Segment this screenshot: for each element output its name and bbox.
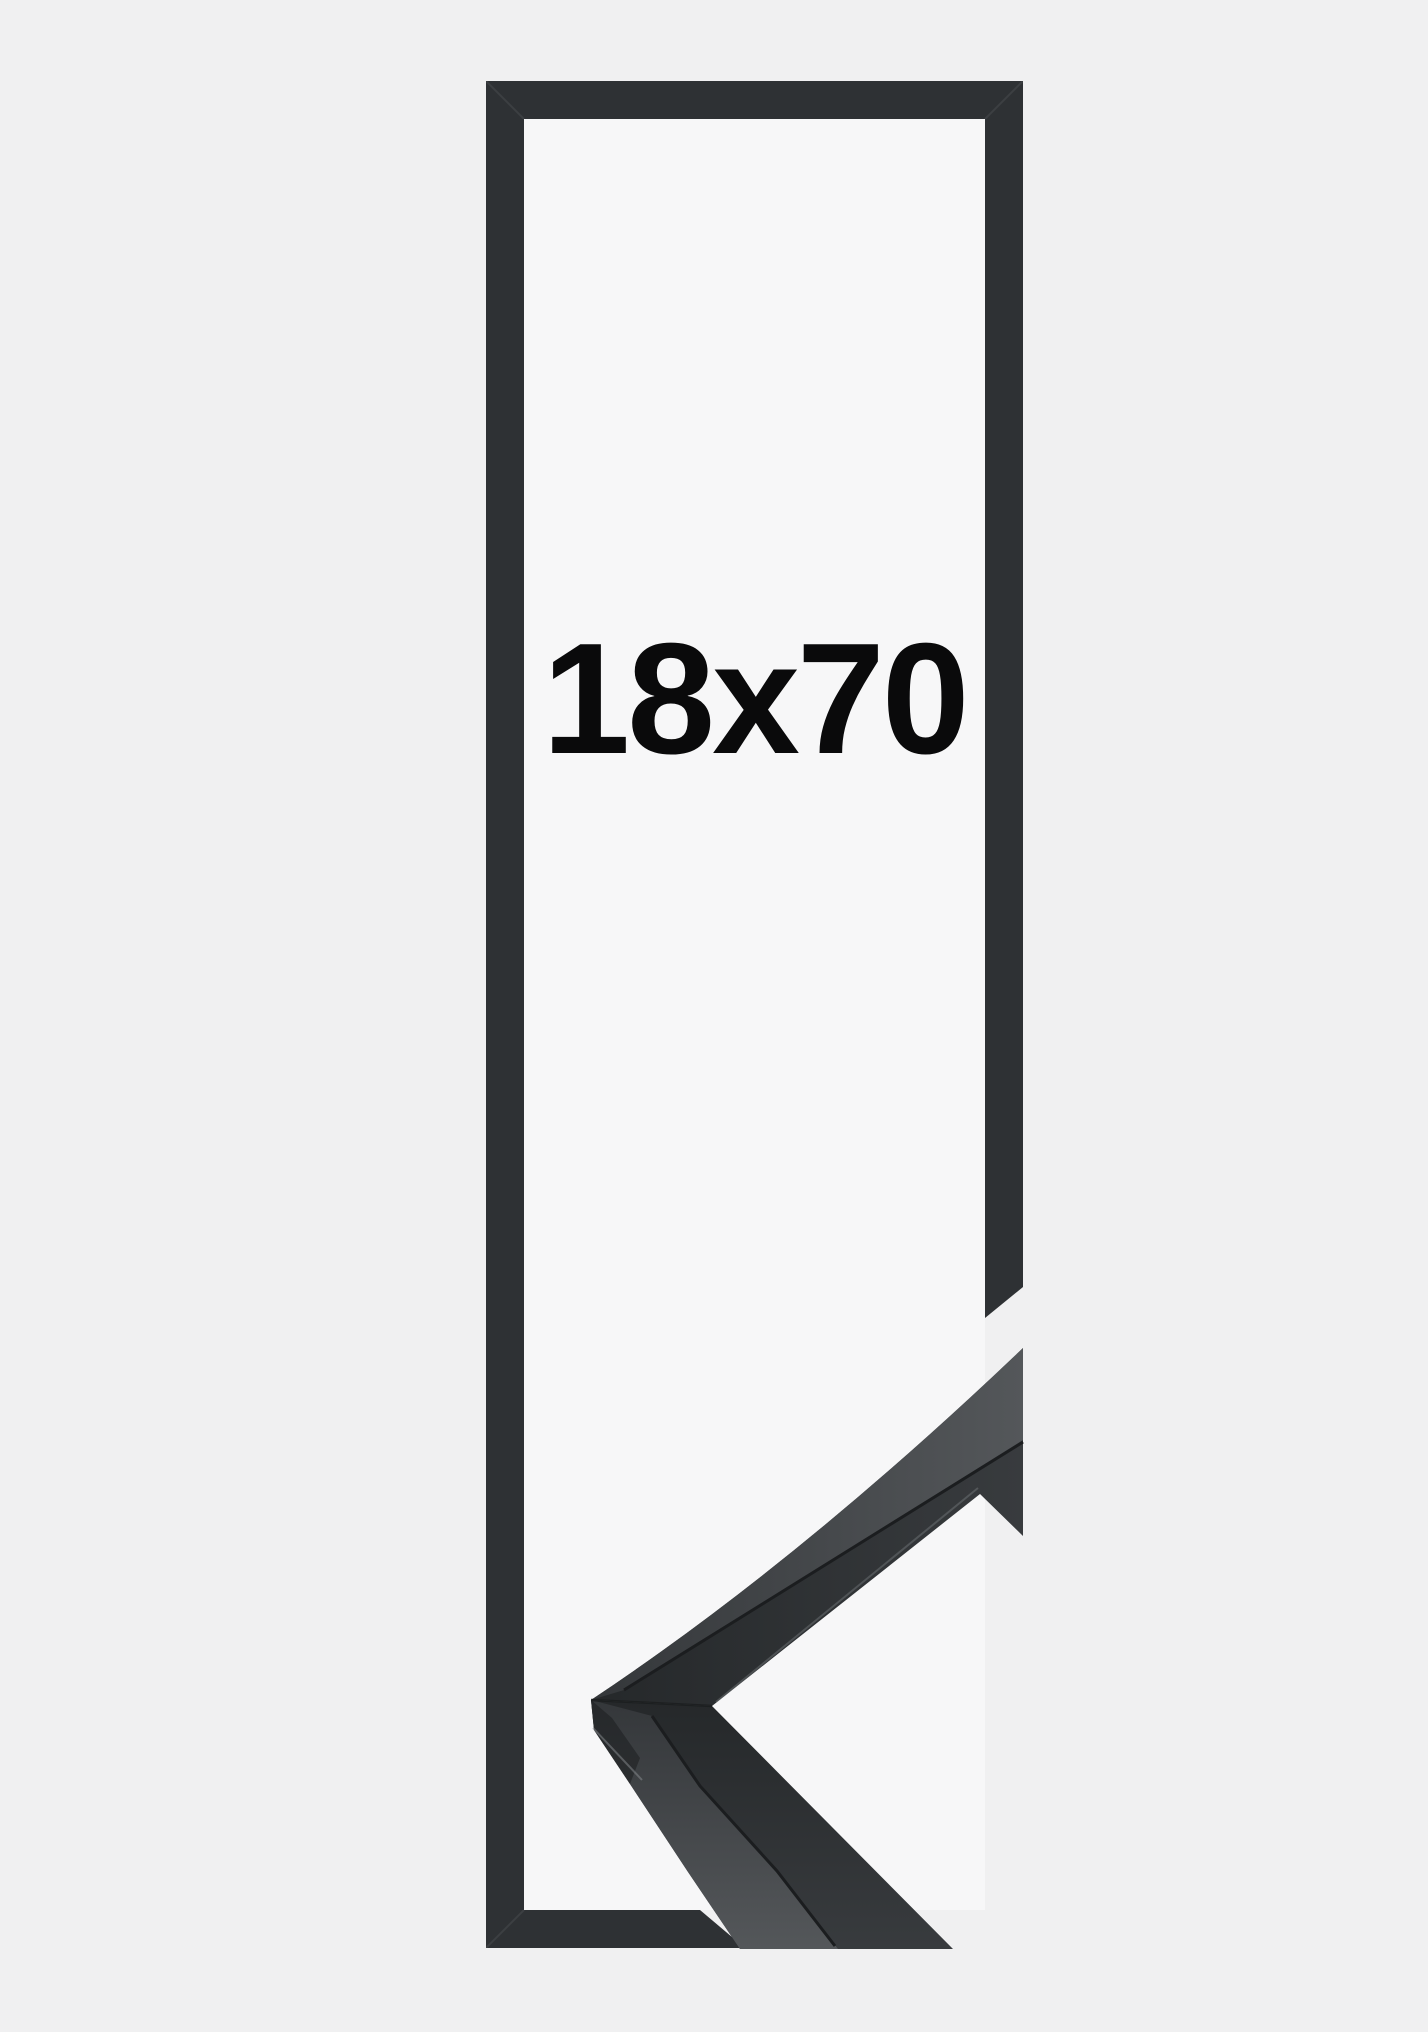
frame-left-bar [486, 81, 524, 1948]
frame-bottom-bar [486, 1910, 745, 1948]
size-label: 18x70 [524, 614, 985, 784]
frame-top-bar [486, 81, 1023, 119]
frame-right-bar [985, 81, 1023, 1318]
product-image[interactable]: 18x70 [40, 16, 1428, 2016]
frame-illustration [40, 16, 1428, 2016]
